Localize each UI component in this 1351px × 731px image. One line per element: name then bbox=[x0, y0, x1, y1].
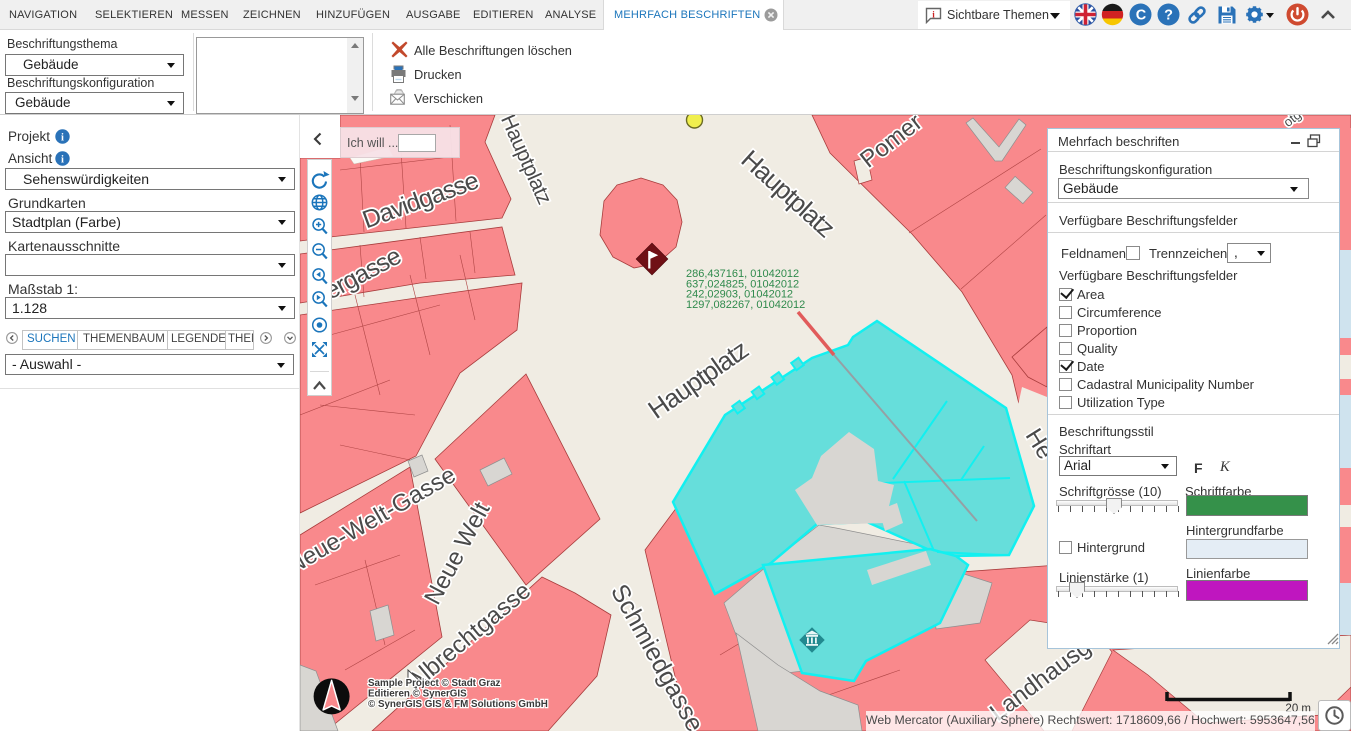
svg-text:1297,082267, 01042012: 1297,082267, 01042012 bbox=[686, 299, 805, 311]
svg-text:Editieren © SynerGIS: Editieren © SynerGIS bbox=[368, 689, 467, 700]
svg-text:i: i bbox=[61, 155, 64, 166]
svg-text:C: C bbox=[1136, 8, 1147, 24]
svg-text:?: ? bbox=[1164, 8, 1173, 24]
svg-text:© SynerGIS GIS & FM Solutions: © SynerGIS GIS & FM Solutions GmbH bbox=[368, 699, 548, 710]
svg-text:i: i bbox=[61, 133, 64, 144]
svg-text:Sample Project © Stadt Graz: Sample Project © Stadt Graz bbox=[368, 678, 501, 689]
